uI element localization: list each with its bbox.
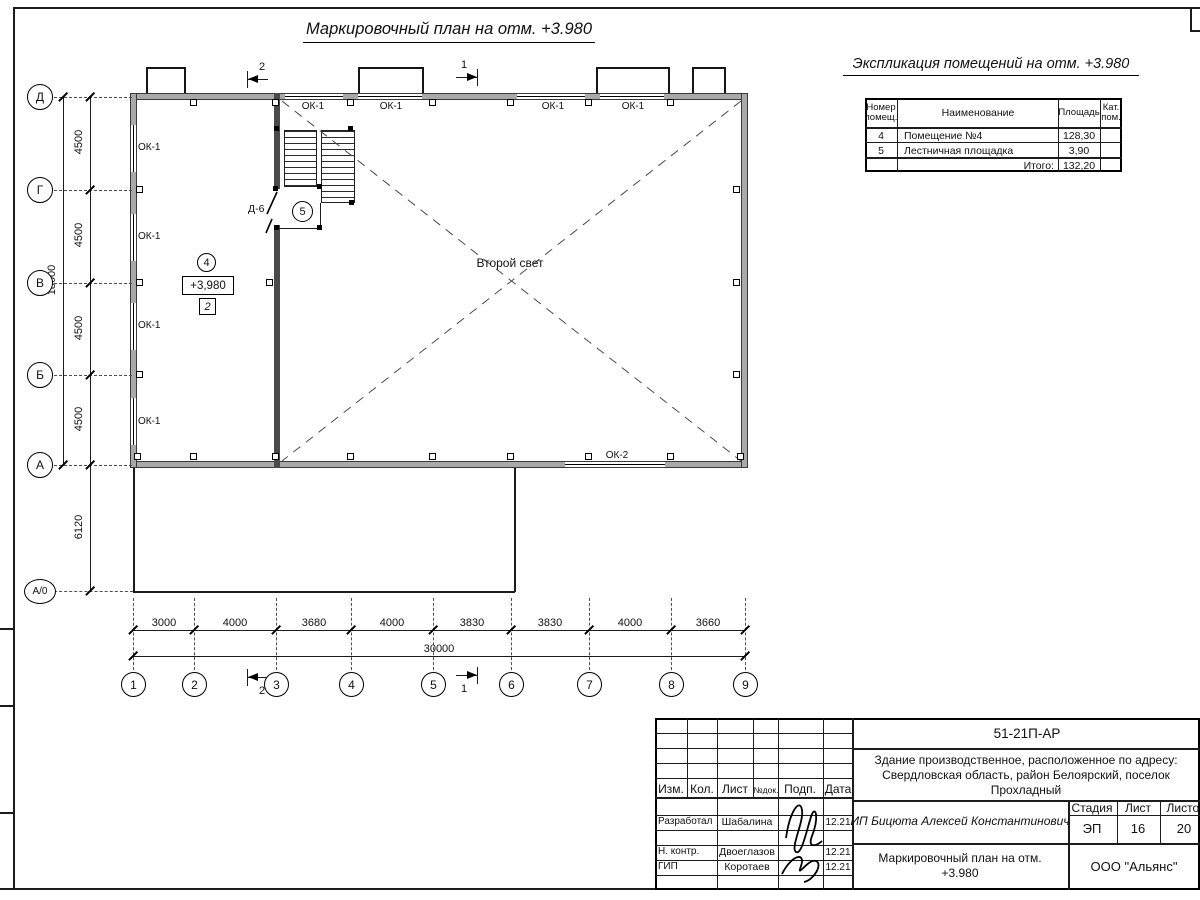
- dimension-total: 30000: [424, 643, 455, 655]
- column-marker: [134, 453, 141, 460]
- title-block-line: [655, 778, 853, 779]
- window-label: ОК-1: [302, 101, 325, 112]
- axis-line: [133, 598, 134, 670]
- sheet-title: Маркировочный план на отм.: [878, 851, 1041, 865]
- section-arrow-right: [467, 671, 477, 679]
- axis-line: [54, 97, 132, 98]
- dimension-value: 3680: [302, 617, 326, 629]
- axis-line: [194, 598, 195, 670]
- window-label: ОК-1: [138, 142, 161, 153]
- date-value: 12.21: [825, 817, 850, 828]
- column-marker: [585, 453, 592, 460]
- axis-line: [276, 598, 277, 670]
- stage-header: Стадия: [1072, 801, 1113, 815]
- dimension-line: [133, 656, 745, 657]
- date-value: 12.21: [825, 862, 850, 873]
- section-label: 1: [461, 683, 467, 695]
- window-label: ОК-1: [138, 231, 161, 242]
- axis-line: [54, 283, 132, 284]
- section-label: 1: [461, 59, 467, 71]
- company-name: ООО "Альянс": [1091, 859, 1178, 874]
- section-mark: [477, 69, 478, 86]
- axis-line: [54, 465, 132, 466]
- title-block-line: [655, 748, 853, 749]
- column-marker: [429, 453, 436, 460]
- document-number: 51-21П-АР: [994, 726, 1061, 741]
- window-label: ОК-2: [606, 450, 629, 461]
- column-header: Кол.: [690, 782, 714, 796]
- elevation-mark: +3,980: [182, 276, 234, 295]
- column-marker: [136, 371, 143, 378]
- axis-line: [671, 598, 672, 670]
- column-marker: [733, 371, 740, 378]
- dimension-value: 4500: [73, 205, 85, 265]
- dimension-line: [63, 97, 64, 465]
- title-block-line: [655, 763, 853, 764]
- dimension-value: 4500: [73, 112, 85, 172]
- client-name: ИП Бицюта Алексей Константинович: [850, 814, 1069, 828]
- person-name: Коротаев: [724, 861, 769, 873]
- person-name: Шабалина: [722, 816, 773, 828]
- section-arrow-right: [467, 73, 477, 81]
- role-label: Н. контр.: [658, 846, 699, 857]
- axis-bubble: 1: [121, 672, 146, 697]
- column-marker: [507, 99, 514, 106]
- axis-bubble: А/0: [24, 579, 56, 604]
- column-header: Подп.: [784, 782, 816, 796]
- stage-value: ЭП: [1083, 821, 1102, 836]
- role-label: ГИП: [658, 861, 678, 872]
- second-light-label: Второй свет: [476, 256, 543, 270]
- dimension-value: 4000: [380, 617, 404, 629]
- column-marker: [733, 279, 740, 286]
- column-header: Дата: [825, 782, 852, 796]
- axis-bubble: 9: [733, 672, 758, 697]
- column-marker: [347, 453, 354, 460]
- axis-bubble: А: [27, 452, 53, 478]
- title-block-line: [687, 718, 688, 798]
- project-description: Свердловская область, район Белоярский, …: [882, 768, 1170, 782]
- sheet-value: 16: [1131, 821, 1145, 836]
- axis-line: [511, 598, 512, 670]
- axis-bubble: 7: [577, 672, 602, 697]
- window-label: ОК-1: [138, 320, 161, 331]
- dimension-value: 3660: [696, 617, 720, 629]
- sheet-header: Лист: [1125, 801, 1151, 815]
- title-block-line: [1117, 800, 1118, 843]
- section-mark: [477, 667, 478, 684]
- dimension-line: [133, 630, 745, 631]
- axis-bubble: Д: [27, 84, 53, 110]
- column-marker: [272, 453, 279, 460]
- axis-bubble: 8: [659, 672, 684, 697]
- axis-line: [589, 598, 590, 670]
- extension-outline: [514, 468, 516, 592]
- column-marker: [136, 186, 143, 193]
- dimension-value: 6120: [73, 497, 85, 557]
- project-description: Здание производственное, расположенное п…: [874, 753, 1177, 767]
- dimension-value: 3830: [460, 617, 484, 629]
- window-label: ОК-1: [138, 416, 161, 427]
- door-leaf: [267, 192, 277, 214]
- extension-outline: [133, 468, 135, 592]
- axis-bubble: 6: [499, 672, 524, 697]
- title-block-line: [655, 733, 853, 734]
- door-leaf: [266, 219, 272, 233]
- date-value: 12.21: [825, 847, 850, 858]
- column-marker: [733, 186, 740, 193]
- dimension-value: 4000: [618, 617, 642, 629]
- room-number-circle: 5: [292, 201, 313, 222]
- dimension-value: 3830: [538, 617, 562, 629]
- sheets-value: 20: [1177, 821, 1191, 836]
- axis-bubble: 3: [264, 672, 289, 697]
- axis-bubble: 5: [421, 672, 446, 697]
- door-label: Д-6: [248, 203, 264, 215]
- column-header: Лист: [722, 782, 748, 796]
- column-marker: [429, 99, 436, 106]
- axis-line: [745, 598, 746, 670]
- window-label: ОК-1: [380, 101, 403, 112]
- axis-bubble: В: [27, 270, 53, 296]
- zone-mark: 2: [199, 298, 216, 315]
- dimension-value: 3000: [152, 617, 176, 629]
- column-marker: [737, 453, 744, 460]
- axis-line: [54, 190, 132, 191]
- title-block-line: [852, 718, 854, 890]
- column-marker: [190, 99, 197, 106]
- column-header: Изм.: [658, 782, 684, 796]
- axis-bubble: Г: [27, 177, 53, 203]
- window-label: ОК-1: [542, 101, 565, 112]
- column-marker: [136, 279, 143, 286]
- axis-bubble: 4: [339, 672, 364, 697]
- column-marker: [585, 99, 592, 106]
- dimension-value: 4500: [73, 389, 85, 449]
- section-arrow-left: [248, 75, 258, 83]
- title-block-line: [1068, 815, 1200, 816]
- axis-line: [351, 598, 352, 670]
- project-description: Прохладный: [991, 783, 1061, 797]
- axis-bubble: 2: [182, 672, 207, 697]
- person-name: Двоеглазов: [719, 846, 775, 858]
- dimension-value: 4000: [223, 617, 247, 629]
- room-number-circle: 4: [197, 253, 216, 272]
- column-marker: [347, 99, 354, 106]
- title-block-line: [1160, 800, 1161, 843]
- axis-line: [433, 598, 434, 670]
- column-marker: [667, 99, 674, 106]
- dimension-value: 4500: [73, 298, 85, 358]
- extension-outline: [133, 591, 515, 593]
- column-marker: [667, 453, 674, 460]
- title-block-line: [852, 843, 1200, 845]
- role-label: Разработал: [658, 816, 712, 827]
- column-marker: [507, 453, 514, 460]
- title-block-line: [852, 748, 1200, 750]
- drawing-sheet: Маркировочный план на отм. +3.980 Экспли…: [0, 0, 1200, 900]
- signature-strokes: [778, 796, 826, 888]
- axis-line: [54, 375, 132, 376]
- title-block-line: [717, 718, 718, 890]
- column-marker: [190, 453, 197, 460]
- column-header: №док.: [754, 785, 779, 795]
- column-marker: [272, 99, 279, 106]
- section-arrow-left: [248, 673, 258, 681]
- window-label: ОК-1: [622, 101, 645, 112]
- column-marker: [266, 279, 273, 286]
- dimension-line: [90, 97, 91, 591]
- section-label: 2: [259, 61, 265, 73]
- axis-line: [54, 591, 133, 592]
- sheets-header: Листов: [1167, 801, 1200, 815]
- axis-bubble: Б: [27, 362, 53, 388]
- sheet-title: +3.980: [941, 866, 978, 880]
